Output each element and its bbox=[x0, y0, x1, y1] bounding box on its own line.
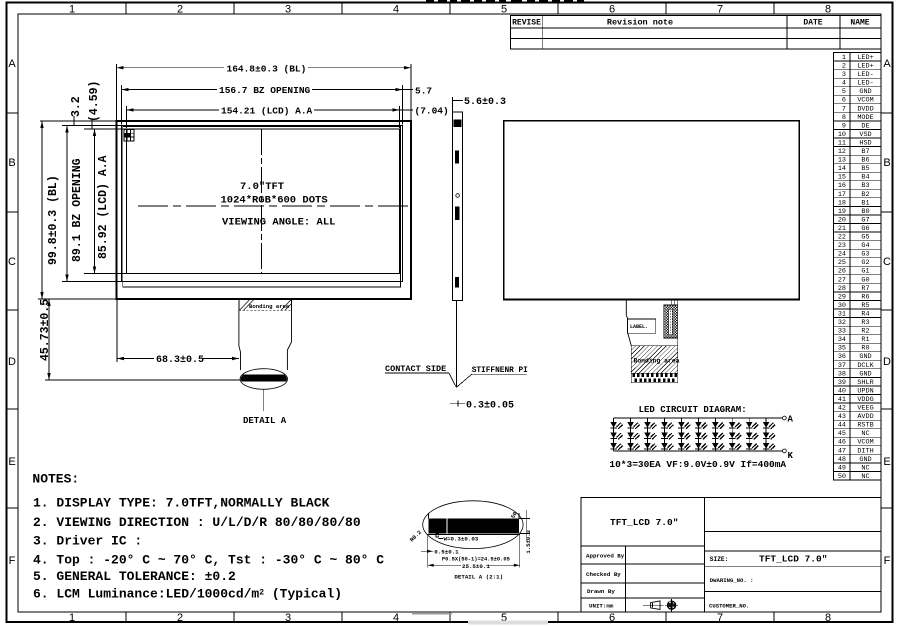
svg-text:DE: DE bbox=[861, 122, 869, 130]
svg-text:Drawn By: Drawn By bbox=[587, 588, 615, 595]
svg-text:UNIT:mm: UNIT:mm bbox=[589, 603, 614, 610]
svg-text:7: 7 bbox=[842, 105, 846, 113]
svg-text:10*3=30EA VF:9.0V±0.9V If=400: 10*3=30EA VF:9.0V±0.9V If=400mA bbox=[609, 459, 786, 470]
svg-text:NC: NC bbox=[861, 430, 869, 438]
svg-text:LED-: LED- bbox=[857, 80, 873, 88]
svg-text:46: 46 bbox=[838, 439, 846, 447]
svg-text:1: 1 bbox=[842, 54, 846, 62]
svg-text:31: 31 bbox=[838, 310, 846, 318]
svg-text:B5: B5 bbox=[861, 165, 869, 173]
svg-text:37: 37 bbox=[838, 362, 846, 370]
svg-text:G7: G7 bbox=[861, 216, 869, 224]
svg-text:UPDN: UPDN bbox=[857, 387, 873, 395]
svg-text:4: 4 bbox=[393, 612, 399, 624]
svg-text:TFT_LCD 7.0″: TFT_LCD 7.0″ bbox=[610, 517, 678, 528]
svg-text:3: 3 bbox=[842, 71, 846, 79]
svg-text:12: 12 bbox=[838, 148, 846, 156]
svg-text:REVISE: REVISE bbox=[512, 19, 541, 28]
svg-text:5.7: 5.7 bbox=[415, 85, 432, 96]
svg-text:3: 3 bbox=[285, 4, 291, 16]
svg-text:1. DISPLAY TYPE: 7.0TFT,NORMAL: 1. DISPLAY TYPE: 7.0TFT,NORMALLY BLACK bbox=[33, 496, 330, 511]
svg-text:B1: B1 bbox=[861, 199, 869, 207]
svg-text:(7.04): (7.04) bbox=[415, 106, 449, 117]
svg-text:B4: B4 bbox=[861, 174, 869, 182]
svg-text:C: C bbox=[8, 256, 16, 268]
svg-text:22: 22 bbox=[838, 234, 846, 242]
svg-text:NC: NC bbox=[861, 464, 869, 472]
svg-text:E: E bbox=[8, 456, 15, 468]
svg-text:8: 8 bbox=[825, 4, 831, 16]
svg-text:5.6±0.3: 5.6±0.3 bbox=[464, 97, 506, 108]
svg-text:G3: G3 bbox=[861, 251, 869, 259]
svg-text:DETAIL A (2:1): DETAIL A (2:1) bbox=[454, 574, 503, 581]
svg-text:3: 3 bbox=[285, 612, 291, 624]
svg-text:K: K bbox=[788, 451, 794, 461]
svg-text:5: 5 bbox=[501, 4, 507, 16]
svg-text:Revision note: Revision note bbox=[607, 18, 673, 28]
svg-text:G4: G4 bbox=[861, 242, 869, 250]
svg-text:GND: GND bbox=[859, 353, 871, 361]
svg-text:B: B bbox=[8, 157, 15, 169]
svg-text:G0: G0 bbox=[861, 276, 869, 284]
svg-text:D: D bbox=[8, 356, 16, 368]
svg-text:VDDG: VDDG bbox=[857, 396, 873, 404]
svg-text:B2: B2 bbox=[861, 191, 869, 199]
svg-text:CUSTOMER_NO.: CUSTOMER_NO. bbox=[709, 603, 749, 610]
svg-text:25: 25 bbox=[838, 259, 846, 267]
svg-text:49: 49 bbox=[838, 464, 846, 472]
svg-text:23: 23 bbox=[838, 242, 846, 250]
svg-text:R5: R5 bbox=[861, 302, 869, 310]
svg-text:VCOM: VCOM bbox=[857, 97, 873, 105]
svg-text:E: E bbox=[883, 456, 890, 468]
svg-text:G1: G1 bbox=[861, 268, 869, 276]
svg-text:B3: B3 bbox=[861, 182, 869, 190]
svg-text:30: 30 bbox=[838, 302, 846, 310]
svg-text:15: 15 bbox=[838, 174, 846, 182]
svg-text:A: A bbox=[883, 58, 891, 70]
svg-text:5. GENERAL TOLERANCE: ±0.2: 5. GENERAL TOLERANCE: ±0.2 bbox=[33, 569, 236, 584]
svg-text:1.5±0.3: 1.5±0.3 bbox=[525, 529, 532, 553]
svg-text:1: 1 bbox=[69, 4, 75, 16]
svg-text:NAME: NAME bbox=[850, 19, 869, 28]
svg-text:42: 42 bbox=[838, 405, 846, 413]
svg-text:HSD: HSD bbox=[859, 139, 871, 147]
svg-text:G6: G6 bbox=[861, 225, 869, 233]
svg-text:DVDD: DVDD bbox=[857, 105, 873, 113]
svg-text:B7: B7 bbox=[861, 148, 869, 156]
svg-text:85.92 (LCD) A.A: 85.92 (LCD) A.A bbox=[97, 155, 110, 259]
svg-text:2: 2 bbox=[177, 4, 183, 16]
svg-text:0.5±0.1: 0.5±0.1 bbox=[434, 549, 459, 556]
svg-text:R0: R0 bbox=[861, 345, 869, 353]
svg-text:LED+: LED+ bbox=[857, 63, 873, 71]
svg-text:40: 40 bbox=[838, 387, 846, 395]
svg-text:F: F bbox=[884, 555, 891, 567]
svg-text:8: 8 bbox=[842, 114, 846, 122]
svg-text:C: C bbox=[883, 256, 891, 268]
svg-text:2: 2 bbox=[842, 63, 846, 71]
svg-text:G5: G5 bbox=[861, 234, 869, 242]
svg-text:10: 10 bbox=[838, 131, 846, 139]
svg-text:26: 26 bbox=[838, 268, 846, 276]
svg-text:A: A bbox=[8, 58, 16, 70]
svg-text:B0: B0 bbox=[861, 208, 869, 216]
svg-text:B6: B6 bbox=[861, 157, 869, 165]
svg-text:LED+: LED+ bbox=[857, 54, 873, 62]
svg-text:24: 24 bbox=[838, 251, 846, 259]
svg-text:28: 28 bbox=[838, 285, 846, 293]
svg-text:R6: R6 bbox=[861, 293, 869, 301]
svg-text:A: A bbox=[788, 415, 794, 425]
svg-text:39: 39 bbox=[838, 379, 846, 387]
svg-text:19: 19 bbox=[838, 208, 846, 216]
svg-text:20: 20 bbox=[838, 216, 846, 224]
svg-text:9: 9 bbox=[842, 122, 846, 130]
svg-text:45: 45 bbox=[838, 430, 846, 438]
svg-text:P0.5X(50-1)=24.5±0.05: P0.5X(50-1)=24.5±0.05 bbox=[442, 556, 510, 562]
svg-text:27: 27 bbox=[838, 276, 846, 284]
svg-text:47: 47 bbox=[838, 447, 846, 455]
svg-text:32: 32 bbox=[838, 319, 846, 327]
svg-text:DWARING_NO. :: DWARING_NO. : bbox=[710, 577, 754, 584]
svg-text:GND: GND bbox=[859, 88, 871, 96]
svg-text:DATE: DATE bbox=[803, 19, 822, 28]
svg-text:B: B bbox=[883, 157, 890, 169]
svg-text:GND: GND bbox=[859, 456, 871, 464]
svg-text:48: 48 bbox=[838, 456, 846, 464]
svg-text:25.5±0.1: 25.5±0.1 bbox=[462, 563, 490, 570]
svg-text:5: 5 bbox=[842, 88, 846, 96]
svg-text:SHLR: SHLR bbox=[857, 379, 873, 387]
svg-text:7: 7 bbox=[717, 4, 723, 16]
svg-text:VIEWING ANGLE: ALL: VIEWING ANGLE: ALL bbox=[222, 217, 335, 229]
svg-text:6: 6 bbox=[609, 612, 615, 624]
svg-text:3.2: 3.2 bbox=[70, 96, 83, 117]
svg-text:1024*RGB*600 DOTS: 1024*RGB*600 DOTS bbox=[221, 195, 328, 207]
svg-text:VSD: VSD bbox=[859, 131, 871, 139]
svg-text:41: 41 bbox=[838, 396, 846, 404]
svg-text:SIZE:: SIZE: bbox=[710, 556, 729, 563]
svg-text:13: 13 bbox=[838, 157, 846, 165]
svg-text:R3: R3 bbox=[861, 319, 869, 327]
svg-text:17: 17 bbox=[838, 191, 846, 199]
svg-text:Bonding area: Bonding area bbox=[634, 358, 680, 365]
svg-text:44: 44 bbox=[838, 422, 846, 430]
svg-text:Approved By: Approved By bbox=[586, 553, 625, 560]
svg-text:3. Driver IC :: 3. Driver IC : bbox=[33, 534, 142, 549]
svg-text:NC: NC bbox=[861, 473, 869, 481]
svg-text:GND: GND bbox=[859, 370, 871, 378]
svg-text:50: 50 bbox=[838, 473, 846, 481]
svg-text:36: 36 bbox=[838, 353, 846, 361]
svg-text:164.8±0.3 (BL): 164.8±0.3 (BL) bbox=[227, 63, 307, 74]
svg-text:D: D bbox=[883, 356, 891, 368]
svg-text:DITH: DITH bbox=[857, 447, 873, 455]
svg-text:VEEG: VEEG bbox=[857, 405, 873, 413]
svg-text:STIFFNENR PI: STIFFNENR PI bbox=[472, 367, 528, 375]
svg-text:R1: R1 bbox=[861, 336, 869, 344]
svg-text:89.1 BZ OPENING: 89.1 BZ OPENING bbox=[71, 158, 84, 262]
svg-text:45.73±0.5: 45.73±0.5 bbox=[39, 299, 52, 361]
svg-text:14: 14 bbox=[838, 165, 846, 173]
svg-text:16: 16 bbox=[838, 182, 846, 190]
svg-text:34: 34 bbox=[838, 336, 846, 344]
svg-text:R4: R4 bbox=[861, 310, 869, 318]
svg-text:DCLK: DCLK bbox=[857, 362, 874, 370]
svg-text:LED CIRCUIT DIAGRAM:: LED CIRCUIT DIAGRAM: bbox=[639, 405, 747, 415]
svg-text:7.0″TFT: 7.0″TFT bbox=[240, 181, 284, 193]
svg-text:35: 35 bbox=[838, 345, 846, 353]
svg-text:2: 2 bbox=[177, 612, 183, 624]
svg-text:DETAIL A: DETAIL A bbox=[243, 416, 287, 426]
svg-text:4: 4 bbox=[393, 4, 399, 16]
svg-text:7: 7 bbox=[717, 612, 723, 624]
svg-text:Bonding area: Bonding area bbox=[249, 303, 290, 310]
svg-text:154.21 (LCD) A.A: 154.21 (LCD) A.A bbox=[221, 106, 313, 117]
svg-text:NOTES:: NOTES: bbox=[32, 472, 79, 487]
svg-text:18: 18 bbox=[838, 199, 846, 207]
svg-text:68.3±0.5: 68.3±0.5 bbox=[156, 355, 204, 366]
svg-text:21: 21 bbox=[838, 225, 846, 233]
svg-text:6: 6 bbox=[842, 97, 846, 105]
svg-text:0.3±0.05: 0.3±0.05 bbox=[466, 401, 514, 412]
svg-text:8: 8 bbox=[825, 612, 831, 624]
svg-text:4. Top : -20° C ~ 70° C, Tst :: 4. Top : -20° C ~ 70° C, Tst : -30° C ~ … bbox=[33, 553, 384, 568]
svg-text:38: 38 bbox=[838, 370, 846, 378]
svg-text:43: 43 bbox=[838, 413, 846, 421]
svg-text:156.7 BZ OPENING: 156.7 BZ OPENING bbox=[219, 85, 311, 96]
svg-text:VCOM: VCOM bbox=[857, 439, 873, 447]
svg-text:G2: G2 bbox=[861, 259, 869, 267]
svg-text:LABEL.: LABEL. bbox=[630, 324, 648, 330]
svg-text:LED-: LED- bbox=[857, 71, 873, 79]
svg-text:CONTACT SIDE: CONTACT SIDE bbox=[385, 364, 446, 374]
svg-text:F: F bbox=[9, 555, 16, 567]
svg-text:TFT_LCD 7.0″: TFT_LCD 7.0″ bbox=[759, 554, 827, 565]
svg-text:R7: R7 bbox=[861, 285, 869, 293]
svg-text:W=0.3±0.03: W=0.3±0.03 bbox=[444, 536, 479, 543]
svg-text:AVDD: AVDD bbox=[857, 413, 873, 421]
svg-text:R2: R2 bbox=[861, 328, 869, 336]
svg-text:4: 4 bbox=[842, 80, 846, 88]
svg-text:6. LCM Luminance:LED/1000cd/m2: 6. LCM Luminance:LED/1000cd/m2 (Typical) bbox=[33, 587, 342, 602]
svg-text:MODE: MODE bbox=[857, 114, 873, 122]
svg-text:33: 33 bbox=[838, 328, 846, 336]
svg-text:11: 11 bbox=[838, 139, 846, 147]
svg-text:2. VIEWING DIRECTION : U/L/D/R: 2. VIEWING DIRECTION : U/L/D/R 80/80/80/… bbox=[33, 515, 361, 530]
svg-text:(4.59): (4.59) bbox=[88, 81, 101, 122]
svg-text:29: 29 bbox=[838, 293, 846, 301]
svg-text:1: 1 bbox=[69, 612, 75, 624]
svg-text:99.8±0.3 (BL): 99.8±0.3 (BL) bbox=[47, 175, 60, 265]
svg-text:6: 6 bbox=[609, 4, 615, 16]
svg-text:RSTB: RSTB bbox=[857, 422, 873, 430]
svg-text:Checked By: Checked By bbox=[586, 571, 621, 578]
